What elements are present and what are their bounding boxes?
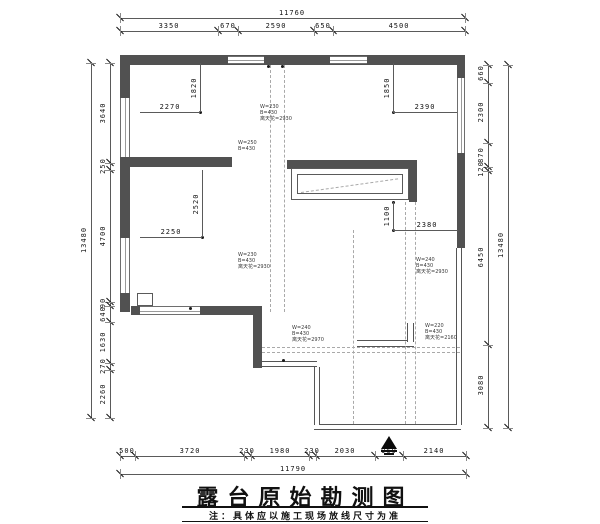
dim-left-total [91, 63, 92, 418]
room-dimension-label: 2390 [415, 103, 436, 111]
window [330, 56, 367, 64]
dim-right-segments-label: 660 [477, 65, 485, 81]
room-dimension-label: 1100 [383, 206, 391, 227]
dim-bottom-segments-ext [403, 451, 404, 461]
dim-top-segments-label: 2590 [266, 22, 287, 30]
window [457, 78, 465, 153]
dim-right-segments-label: 6450 [477, 247, 485, 268]
dim-bottom-total-ext [120, 469, 121, 479]
dim-bottom-segments-label: 500 [119, 447, 135, 455]
dim-right-segments-ext [483, 83, 493, 84]
dim-right-segments [488, 65, 489, 428]
room-dimension-line [202, 170, 203, 237]
beam-dashed-line [262, 347, 460, 348]
beam-dashed-line [262, 352, 460, 353]
dim-top-segments [120, 31, 465, 32]
room-dimension-label: 2250 [161, 228, 182, 236]
wall-segment [120, 55, 465, 65]
structure-outline [137, 293, 153, 306]
dim-top-segments-label: 3350 [159, 22, 180, 30]
beam-annotation-line: 离天花=2930 [238, 264, 270, 270]
dim-right-segments-label: 3080 [477, 375, 485, 396]
dim-left-total-ext [86, 63, 96, 64]
dim-bottom-total-label: 11790 [280, 465, 306, 473]
dim-bottom-segments-label: 2030 [335, 447, 356, 455]
dim-bottom-total [120, 474, 466, 475]
entry-arrow-icon [381, 436, 397, 449]
dim-top-segments-ext [238, 26, 239, 36]
room-dimension-label: 1820 [190, 78, 198, 99]
beam-annotation-line: 离天花=2930 [416, 269, 448, 275]
dim-right-segments-ext [483, 428, 493, 429]
dim-left-total-label: 13480 [80, 227, 88, 253]
dim-bottom-segments-ext [466, 451, 467, 461]
dim-right-total-ext [503, 65, 513, 66]
dim-right-total [508, 65, 509, 428]
dim-left-segments-label: 1630 [99, 332, 107, 353]
entry-arrow-base [384, 453, 394, 455]
dim-bottom-segments-label: 230 [304, 447, 320, 455]
beam-annotation: W=240B=430离天花=2970 [292, 325, 324, 343]
room-dimension-label: 1850 [383, 78, 391, 99]
dim-right-total-ext [503, 428, 513, 429]
dim-bottom-segments-label: 2140 [424, 447, 445, 455]
railing [314, 424, 461, 430]
dim-bottom-total-ext [466, 469, 467, 479]
beam-dashed-line [284, 65, 285, 312]
room-dimension-label: 2270 [160, 103, 181, 111]
dim-top-total-ext [120, 13, 121, 23]
dim-left-segments-label: 2260 [99, 384, 107, 405]
dim-left-segments-label: 640 [99, 306, 107, 322]
dim-top-total-ext [465, 13, 466, 23]
dim-top-segments-ext [465, 26, 466, 36]
room-dimension-label: 2520 [192, 194, 200, 215]
beam-dashed-line [405, 202, 406, 424]
dim-top-segments-ext [120, 26, 121, 36]
wall-segment [253, 315, 262, 368]
beam-annotation: W=220B=430离天花=2160 [425, 323, 457, 341]
room-dimension-line [393, 112, 457, 113]
dim-top-segments-label: 670 [220, 22, 236, 30]
dim-top-total [120, 18, 465, 19]
dim-bottom-segments [120, 456, 466, 457]
room-dimension-line [393, 202, 394, 230]
wall-segment [409, 169, 417, 202]
window [120, 98, 130, 157]
beam-dashed-line [415, 202, 416, 424]
dim-left-segments-label: 3640 [99, 103, 107, 124]
room-dimension-line [140, 112, 200, 113]
dim-right-segments-ext [483, 345, 493, 346]
title-underline-thick [182, 506, 428, 508]
dim-top-segments-ext [218, 26, 219, 36]
dim-bottom-segments-label: 230 [239, 447, 255, 455]
dim-left-total-ext [86, 418, 96, 419]
dim-top-segments-ext [333, 26, 334, 36]
dim-right-total-label: 13480 [497, 232, 505, 258]
dim-top-segments-label: 4500 [389, 22, 410, 30]
dim-top-segments-label: 650 [315, 22, 331, 30]
floor-plan-canvas: 露台原始勘测图 注：具体应以施工现场放线尺寸为准 117603350670259… [0, 0, 600, 524]
beam-annotation-line: B=430 [238, 146, 257, 152]
beam-annotation-line: 离天花=2160 [425, 335, 457, 341]
dim-top-total-label: 11760 [279, 9, 305, 17]
dim-bottom-segments-ext [375, 451, 376, 461]
dim-left-segments-ext [105, 322, 115, 323]
railing [314, 367, 320, 425]
entry-arrow-base [381, 450, 397, 452]
dim-left-segments-ext [105, 63, 115, 64]
dim-right-segments-label: 2300 [477, 102, 485, 123]
dim-left-segments-ext [105, 418, 115, 419]
room-dimension-line [140, 237, 202, 238]
beam-annotation: W=230B=430离天花=2930 [260, 104, 292, 122]
dim-bottom-segments-label: 1980 [270, 447, 291, 455]
dim-right-segments-label: 120 [477, 161, 485, 177]
dim-bottom-segments-ext [135, 451, 136, 461]
window [228, 56, 264, 64]
beam-annotation-line: 离天花=2970 [292, 337, 324, 343]
reference-dot [267, 65, 270, 68]
wall-segment [131, 306, 140, 315]
beam-dashed-line [270, 65, 271, 312]
room-dimension-line [200, 63, 201, 112]
beam-annotation: W=240B=430离天花=2930 [416, 257, 448, 275]
beam-annotation: W=250B=430 [238, 140, 257, 152]
beam-annotation: W=230B=430离天花=2930 [238, 252, 270, 270]
railing [262, 361, 317, 367]
wall-segment [120, 157, 232, 167]
dim-right-segments-ext [483, 143, 493, 144]
wall-segment [200, 306, 262, 315]
room-dimension-label: 2380 [417, 221, 438, 229]
dim-bottom-segments-label: 3720 [180, 447, 201, 455]
title-underline-thin [182, 521, 428, 522]
beam-dashed-line [353, 230, 354, 424]
room-dimension-line [393, 63, 394, 112]
reference-dot [281, 65, 284, 68]
railing [407, 323, 414, 342]
dim-left-segments-label: 250 [99, 158, 107, 174]
reference-dot [189, 307, 192, 310]
dim-left-segments-label: 270 [99, 358, 107, 374]
reference-dot [282, 359, 285, 362]
window [120, 238, 130, 293]
room-dimension-line [393, 230, 458, 231]
dim-left-segments-label: 4700 [99, 226, 107, 247]
beam-annotation-line: 离天花=2930 [260, 116, 292, 122]
